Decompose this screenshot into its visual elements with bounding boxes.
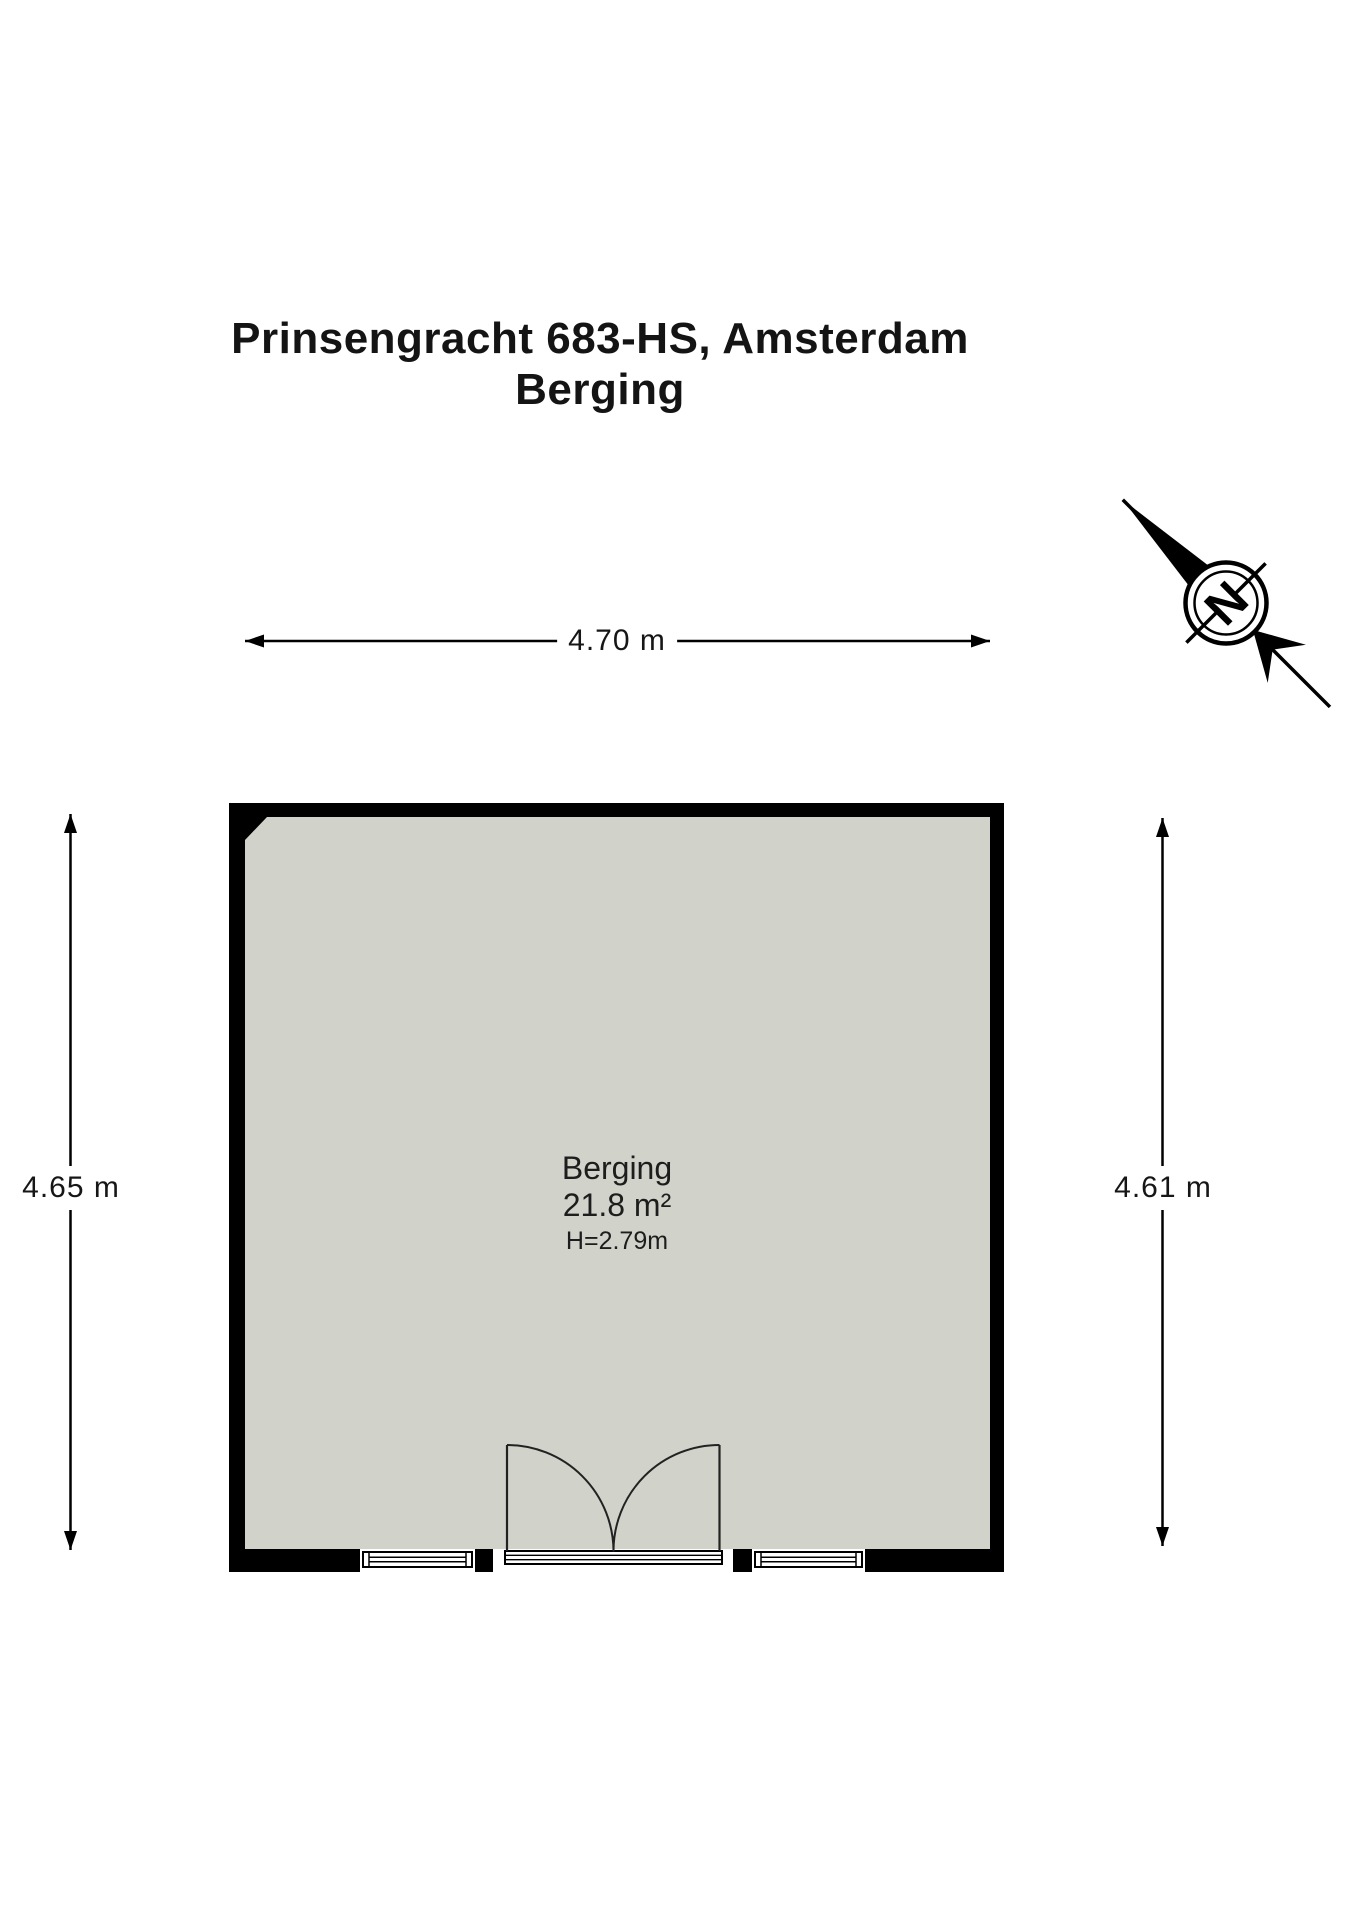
- arrowhead-up-icon: [1156, 818, 1169, 837]
- room-ceiling-height: H=2.79m: [562, 1224, 672, 1258]
- page-title-room: Berging: [20, 364, 1180, 415]
- dimension-label-width: 4.70 m: [557, 619, 677, 663]
- room-name: Berging: [562, 1150, 672, 1187]
- room-area: 21.8 m²: [562, 1187, 672, 1224]
- room-label: Berging 21.8 m² H=2.79m: [562, 1150, 672, 1258]
- floorplan-page: Prinsengracht 683-HS, Amsterdam Berging …: [0, 0, 1358, 1920]
- compass-north-icon: N: [1083, 460, 1358, 746]
- page-title: Prinsengracht 683-HS, Amsterdam Berging: [20, 313, 1180, 415]
- dimension-label-height-right: 4.61 m: [1103, 1166, 1223, 1210]
- arrowhead-down-icon: [64, 1531, 77, 1550]
- arrowhead-right-icon: [971, 635, 990, 648]
- floorplan-drawing: N: [0, 0, 1358, 1920]
- dimension-label-height-left: 4.65 m: [11, 1166, 131, 1210]
- window-right-icon: [755, 1552, 862, 1567]
- arrowhead-left-icon: [245, 635, 264, 648]
- door-sill: [505, 1551, 722, 1564]
- window-left-icon: [363, 1552, 472, 1567]
- page-title-address: Prinsengracht 683-HS, Amsterdam: [20, 313, 1180, 364]
- arrowhead-down-icon: [1156, 1527, 1169, 1546]
- arrowhead-up-icon: [64, 814, 77, 833]
